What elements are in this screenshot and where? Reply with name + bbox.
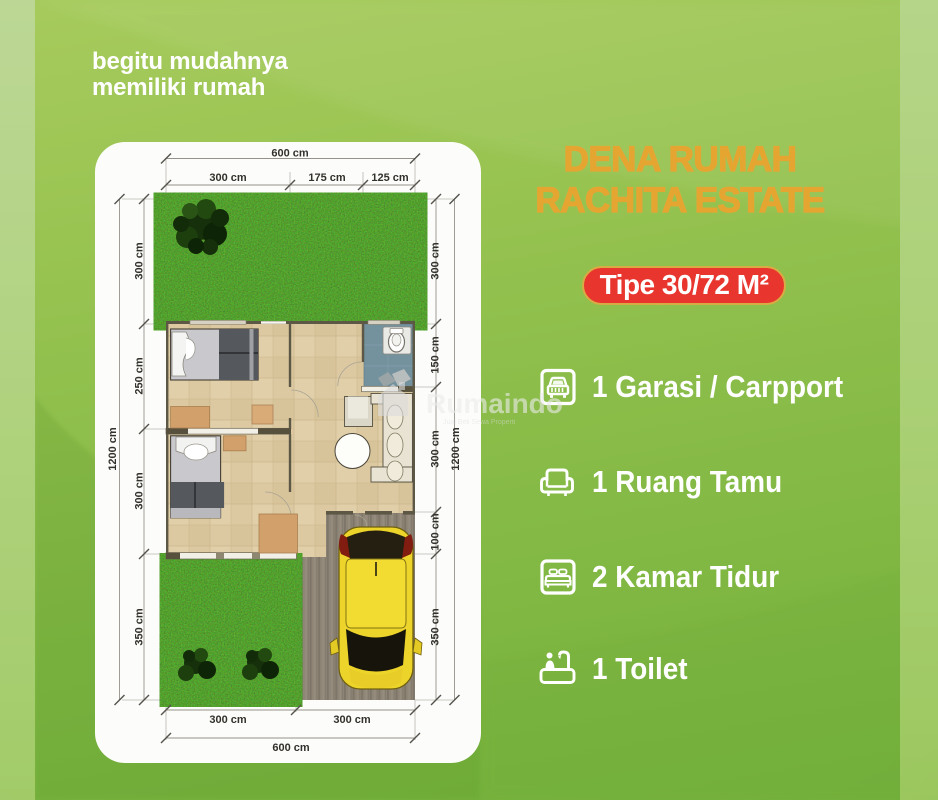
svg-text:300 cm: 300 cm [430, 242, 442, 280]
svg-text:100 cm: 100 cm [430, 513, 442, 551]
svg-text:1200 cm: 1200 cm [450, 427, 462, 471]
svg-text:Jual Beli Sewa Properti: Jual Beli Sewa Properti [443, 419, 516, 426]
svg-text:300 cm: 300 cm [134, 472, 146, 510]
svg-text:Rumaindo: Rumaindo [426, 388, 563, 419]
svg-text:300 cm: 300 cm [430, 430, 442, 468]
svg-text:1200 cm: 1200 cm [107, 427, 119, 471]
svg-text:350 cm: 350 cm [134, 608, 146, 646]
svg-text:150 cm: 150 cm [430, 336, 442, 374]
svg-text:600 cm: 600 cm [271, 148, 309, 160]
svg-text:300 cm: 300 cm [209, 172, 247, 184]
svg-text:600 cm: 600 cm [272, 742, 310, 754]
svg-text:350 cm: 350 cm [430, 608, 442, 646]
svg-text:300 cm: 300 cm [209, 714, 247, 726]
svg-text:300 cm: 300 cm [134, 242, 146, 280]
svg-text:175 cm: 175 cm [308, 172, 346, 184]
svg-text:300 cm: 300 cm [333, 714, 371, 726]
svg-text:250 cm: 250 cm [134, 357, 146, 395]
svg-text:125 cm: 125 cm [371, 172, 409, 184]
